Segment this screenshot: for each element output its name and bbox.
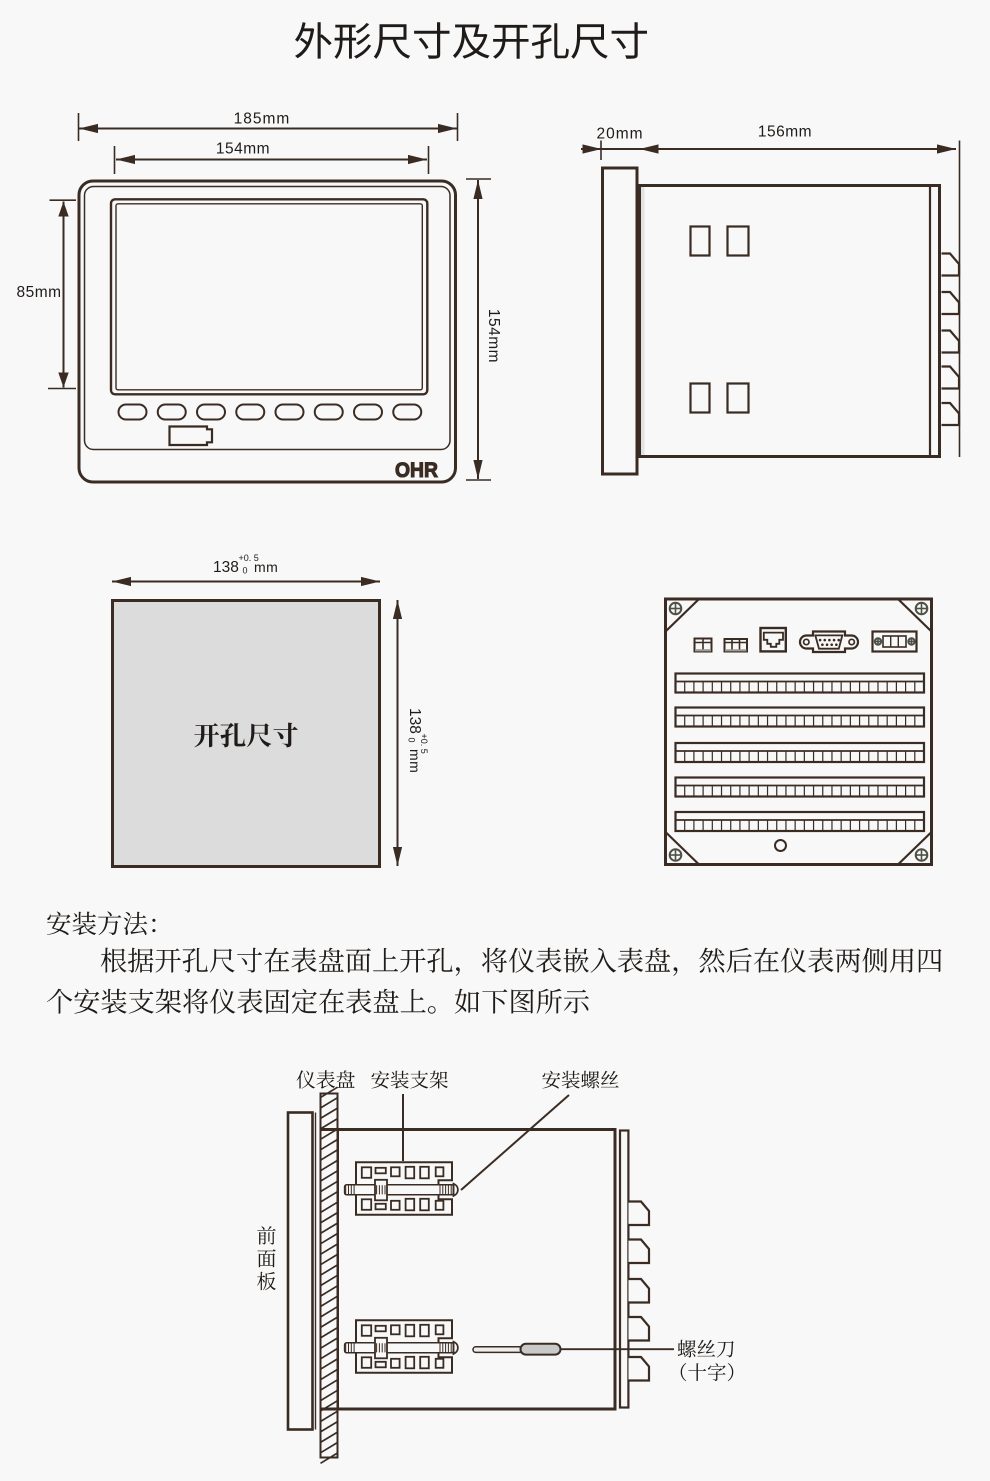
svg-text:20mm: 20mm: [596, 126, 643, 143]
svg-text:mm: mm: [407, 749, 423, 773]
svg-text:154mm: 154mm: [216, 141, 270, 158]
svg-text:85mm: 85mm: [16, 284, 61, 301]
svg-text:154mm: 154mm: [485, 309, 502, 363]
svg-text:185mm: 185mm: [234, 111, 291, 128]
svg-text:138: 138: [406, 708, 423, 734]
svg-text:mm: mm: [254, 559, 278, 575]
svg-text:0: 0: [407, 738, 417, 743]
svg-text:0: 0: [243, 566, 248, 576]
svg-text:156mm: 156mm: [758, 124, 812, 141]
svg-text:OHR: OHR: [395, 458, 438, 482]
svg-text:138: 138: [213, 559, 239, 576]
